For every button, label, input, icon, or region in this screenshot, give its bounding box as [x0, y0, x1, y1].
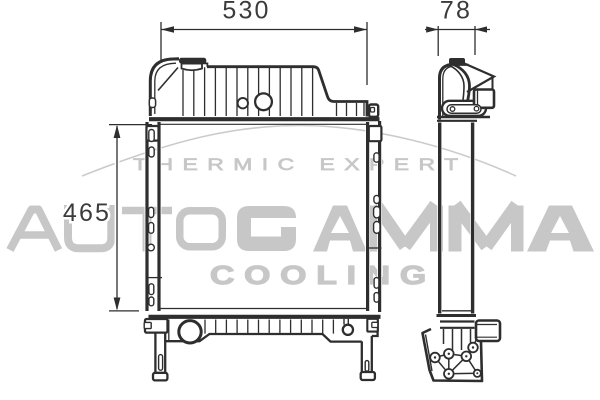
svg-text:530: 530 — [222, 0, 270, 25]
svg-text:78: 78 — [440, 0, 472, 25]
svg-text:THERMIC EXPERT: THERMIC EXPERT — [133, 156, 468, 175]
svg-text:COOLING: COOLING — [210, 262, 436, 290]
svg-text:465: 465 — [63, 199, 111, 227]
